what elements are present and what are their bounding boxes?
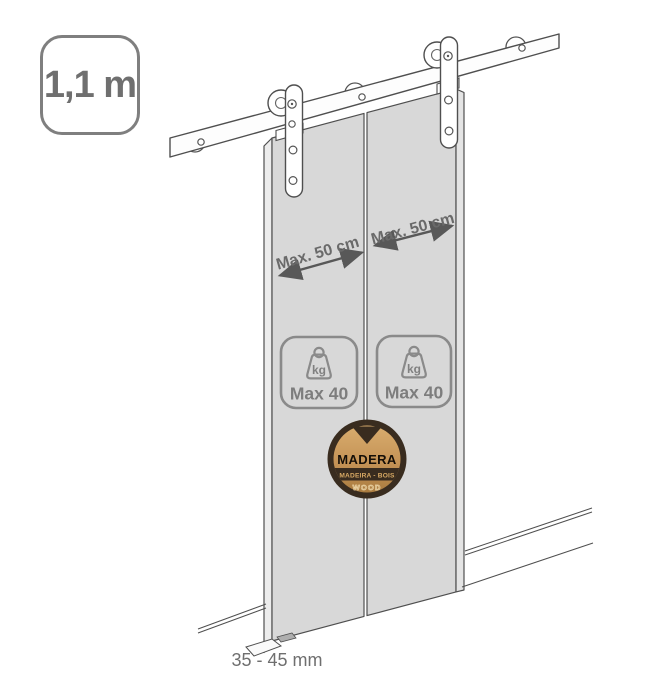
material-translations-label: MADEIRA - BOIS — [339, 473, 395, 480]
axle-bolt-dot — [447, 55, 449, 57]
screw-icon — [198, 139, 204, 145]
door-right-panel — [367, 89, 456, 616]
door-right-edge-face — [456, 89, 464, 592]
strap-screw-icon — [289, 121, 295, 127]
screw-icon — [519, 45, 525, 51]
material-badge: MADERA MADEIRA - BOIS WOOD — [328, 420, 407, 499]
weight-unit-label: kg — [407, 362, 421, 376]
floor-guide-line — [198, 604, 266, 629]
floor-guide-line — [465, 512, 592, 555]
floor-guide-line — [198, 608, 266, 633]
floor-guide-line — [465, 508, 592, 551]
strap-screw-icon — [289, 177, 297, 185]
weight-max-label: Max 40 — [290, 384, 349, 404]
material-name-label: MADERA — [337, 452, 397, 467]
material-english-label: WOOD — [353, 483, 382, 492]
floor-clearance-label: 35 - 45 mm — [231, 650, 322, 670]
product-diagram: 1,1 m — [0, 0, 651, 690]
door-left-edge-face — [264, 138, 272, 653]
strap-screw-icon — [289, 146, 297, 154]
axle-bolt-dot — [291, 103, 293, 105]
strap-screw-icon — [445, 127, 453, 135]
weight-unit-label: kg — [312, 363, 326, 377]
screw-icon — [359, 94, 365, 100]
sliding-door-illustration: Max. 50 cm Max. 50 cm kg Max 40 kg Max 4… — [0, 0, 651, 690]
strap-screw-icon — [445, 96, 453, 104]
weight-max-label: Max 40 — [385, 383, 444, 403]
